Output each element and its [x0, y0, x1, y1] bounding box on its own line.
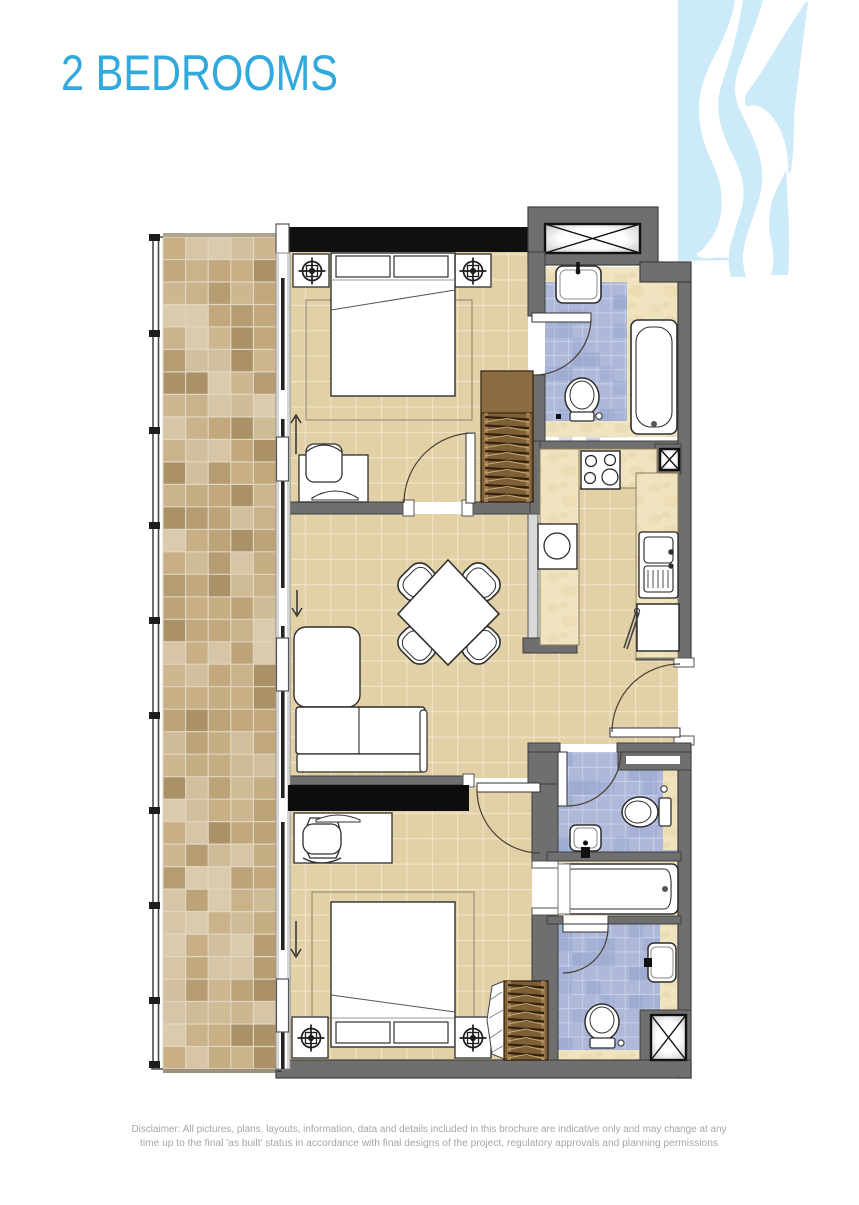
svg-text:Disclaimer: All pictures, plan: Disclaimer: All pictures, plans, layouts… — [132, 1124, 727, 1135]
svg-text:2 BEDROOMS: 2 BEDROOMS — [61, 44, 338, 101]
svg-text:time up to the final 'as built: time up to the final 'as built' status i… — [140, 1138, 718, 1149]
